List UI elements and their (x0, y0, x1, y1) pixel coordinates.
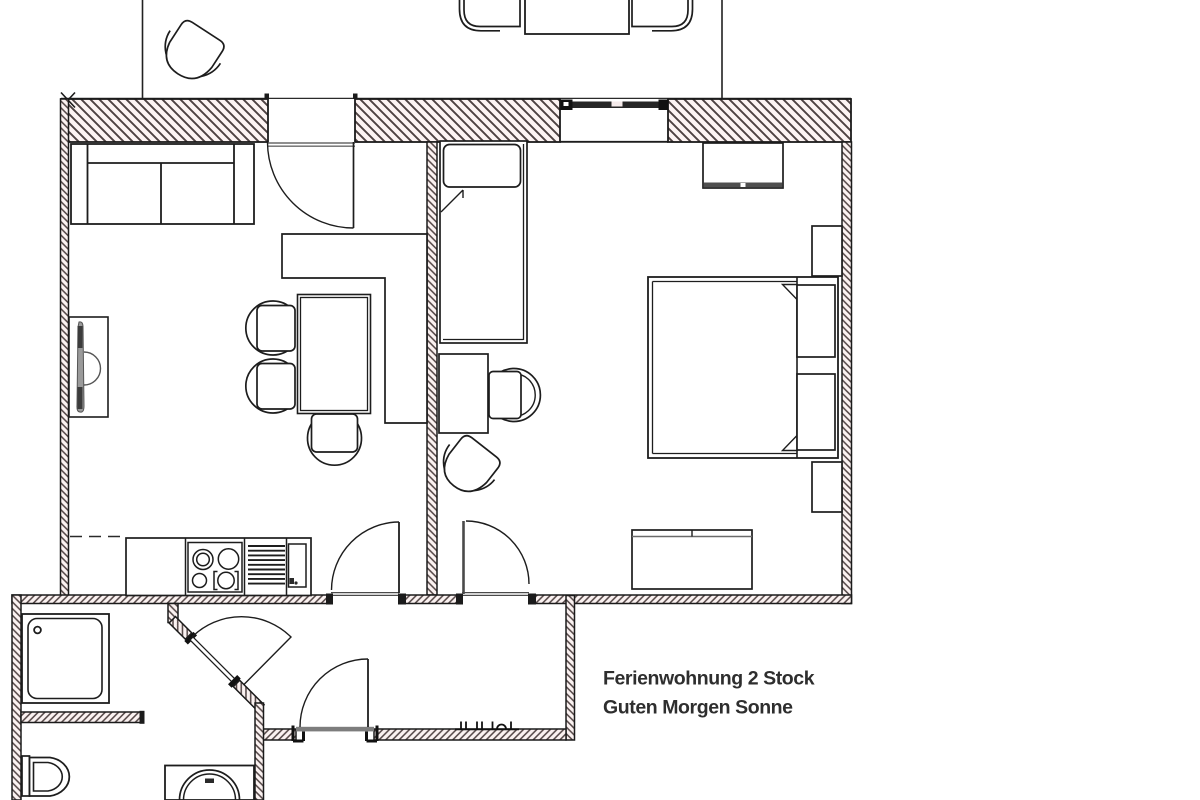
svg-text:Guten Morgen Sonne: Guten Morgen Sonne (603, 697, 793, 719)
svg-text:Ferienwohnung 2 Stock: Ferienwohnung 2 Stock (603, 668, 815, 690)
